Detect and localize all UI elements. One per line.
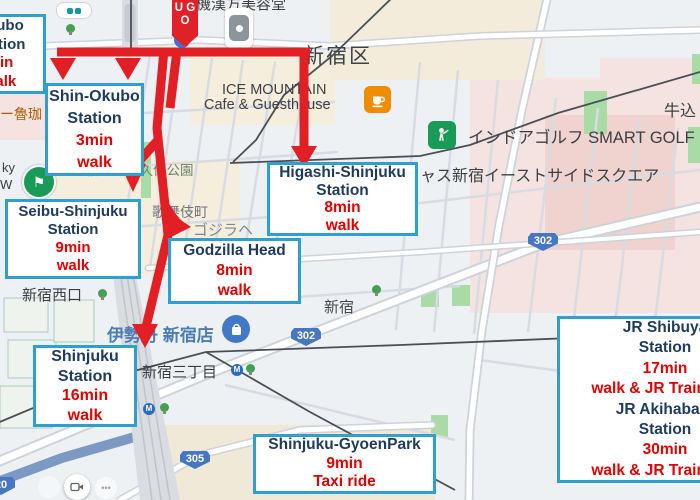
poi-label-roka: ー魯珈 <box>0 104 42 124</box>
poi-label-isetan: 伊勢丹 新宿店 <box>107 321 214 346</box>
station-name: Station <box>316 182 369 200</box>
hotel-tile-poi <box>225 8 253 48</box>
annotation-okubo-station: Okubo Station min walk <box>0 14 46 94</box>
road-badge-302-west: 302 <box>291 328 321 346</box>
road-badge-20: 20 <box>0 477 15 495</box>
dots-icon: ••• <box>101 483 110 493</box>
travel-time: 30min <box>643 440 688 460</box>
poi-label-smart-golf: インドアゴルフ SMART GOLF <box>468 124 695 148</box>
station-name: Station <box>0 36 25 55</box>
dice-tile-icon <box>229 15 249 41</box>
poi-label-godzilla: ゴジラヘ <box>193 219 253 240</box>
tree-icon <box>246 364 255 373</box>
poi-label-sanchome: 新宿三丁目 <box>142 361 217 382</box>
tree-icon <box>372 285 381 294</box>
road-badge-302-east: 302 <box>528 233 558 251</box>
travel-time: 9min <box>326 455 362 474</box>
tree-icon <box>98 289 107 298</box>
station-name: Shinjuku <box>51 347 119 367</box>
metro-icon: M <box>143 403 155 415</box>
travel-mode: walk <box>326 217 360 235</box>
camera-button[interactable] <box>64 474 90 500</box>
district-label-ushigome: 牛込 <box>664 97 696 121</box>
annotation-shin-okubo-station: Shin-Okubo Station 3min walk <box>45 83 144 176</box>
station-name: Station <box>67 108 121 130</box>
coffee-cup-icon <box>370 92 386 108</box>
cafe-poi <box>364 86 391 113</box>
marker-letter: G <box>186 2 195 14</box>
travel-time: 17min <box>643 359 688 379</box>
travel-mode: walk <box>77 152 112 174</box>
annotation-godzilla-head: Godzilla Head 8min walk <box>168 238 301 304</box>
travel-mode: Taxi ride <box>313 473 376 492</box>
travel-mode: walk <box>0 73 16 92</box>
station-name: Station <box>48 221 99 239</box>
shopping-bag-icon <box>229 322 244 337</box>
more-controls-button[interactable]: ••• <box>95 477 117 499</box>
golf-icon <box>434 127 450 143</box>
travel-time: 3min <box>76 130 113 152</box>
station-name: Seibu-Shinjuku <box>18 203 127 221</box>
station-name: Station <box>639 338 692 358</box>
poi-label-ky: ky <box>2 160 15 175</box>
station-name: Okubo <box>0 17 24 36</box>
golf-poi <box>428 121 456 149</box>
district-label-shinjuku-ku: 新宿区 <box>303 40 372 70</box>
travel-time: 8min <box>324 199 360 217</box>
map-control-faded[interactable] <box>38 476 60 498</box>
travel-mode: walk <box>68 406 103 426</box>
transit-pill-icon <box>56 2 92 19</box>
marker-letter: U <box>175 2 183 14</box>
annotation-seibu-shinjuku-station: Seibu-Shinjuku Station 9min walk <box>5 199 141 279</box>
poi-name: Godzilla Head <box>183 241 286 261</box>
travel-time: 8min <box>216 261 252 281</box>
travel-mode: walk & JR Train ride <box>591 379 700 399</box>
district-label-shinjuku: 新宿 <box>324 296 354 317</box>
station-name: Higashi-Shinjuku <box>279 164 406 182</box>
station-name: Shin-Okubo <box>49 86 140 108</box>
poi-label-ice-mountain: ICE MOUNTAIN <box>222 82 326 98</box>
map-canvas[interactable]: 機漢方美容堂 新宿区 ICE MOUNTAIN Cafe & Guesthous… <box>0 0 700 500</box>
station-name: Station <box>639 420 692 440</box>
marker-letter: O <box>181 15 190 27</box>
poi-label-w: W <box>0 177 12 192</box>
travel-mode: walk <box>218 281 252 301</box>
metro-icon: M <box>231 364 243 376</box>
tree-icon <box>160 403 169 412</box>
flag-icon: ⚑ <box>33 174 46 191</box>
isetan-poi <box>222 315 250 343</box>
road-badge-305: 305 <box>180 451 210 469</box>
tree-icon <box>66 24 75 33</box>
travel-time: min <box>0 54 13 73</box>
annotation-shinjuku-gyoen-park: Shinjuku-GyoenPark 9min Taxi ride <box>253 434 436 494</box>
poi-label-eastside-square: ャス新宿イーストサイドスクエア <box>420 162 659 186</box>
station-name: JR Shibuya <box>623 318 700 338</box>
poi-name: Shinjuku-GyoenPark <box>268 436 420 455</box>
annotation-jr-shibuya-akihabara: JR Shibuya Station 17min walk & JR Train… <box>557 316 700 483</box>
annotation-higashi-shinjuku-station: Higashi-Shinjuku Station 8min walk <box>267 162 418 236</box>
poi-label-ice-mountain-2: Cafe & Guesthouse <box>204 97 331 113</box>
poi-label-shinjuku-west: 新宿西口 <box>22 284 82 305</box>
travel-time: 9min <box>55 239 90 257</box>
travel-mode: walk <box>57 257 90 275</box>
camera-icon <box>70 480 84 494</box>
station-name: Station <box>58 367 112 387</box>
station-name: JR Akihabara <box>616 400 700 420</box>
travel-mode: walk & JR Train ride <box>591 461 700 481</box>
godzilla-poi-icon <box>161 213 185 237</box>
travel-time: 16min <box>62 386 108 406</box>
annotation-shinjuku-station: Shinjuku Station 16min walk <box>33 345 137 427</box>
